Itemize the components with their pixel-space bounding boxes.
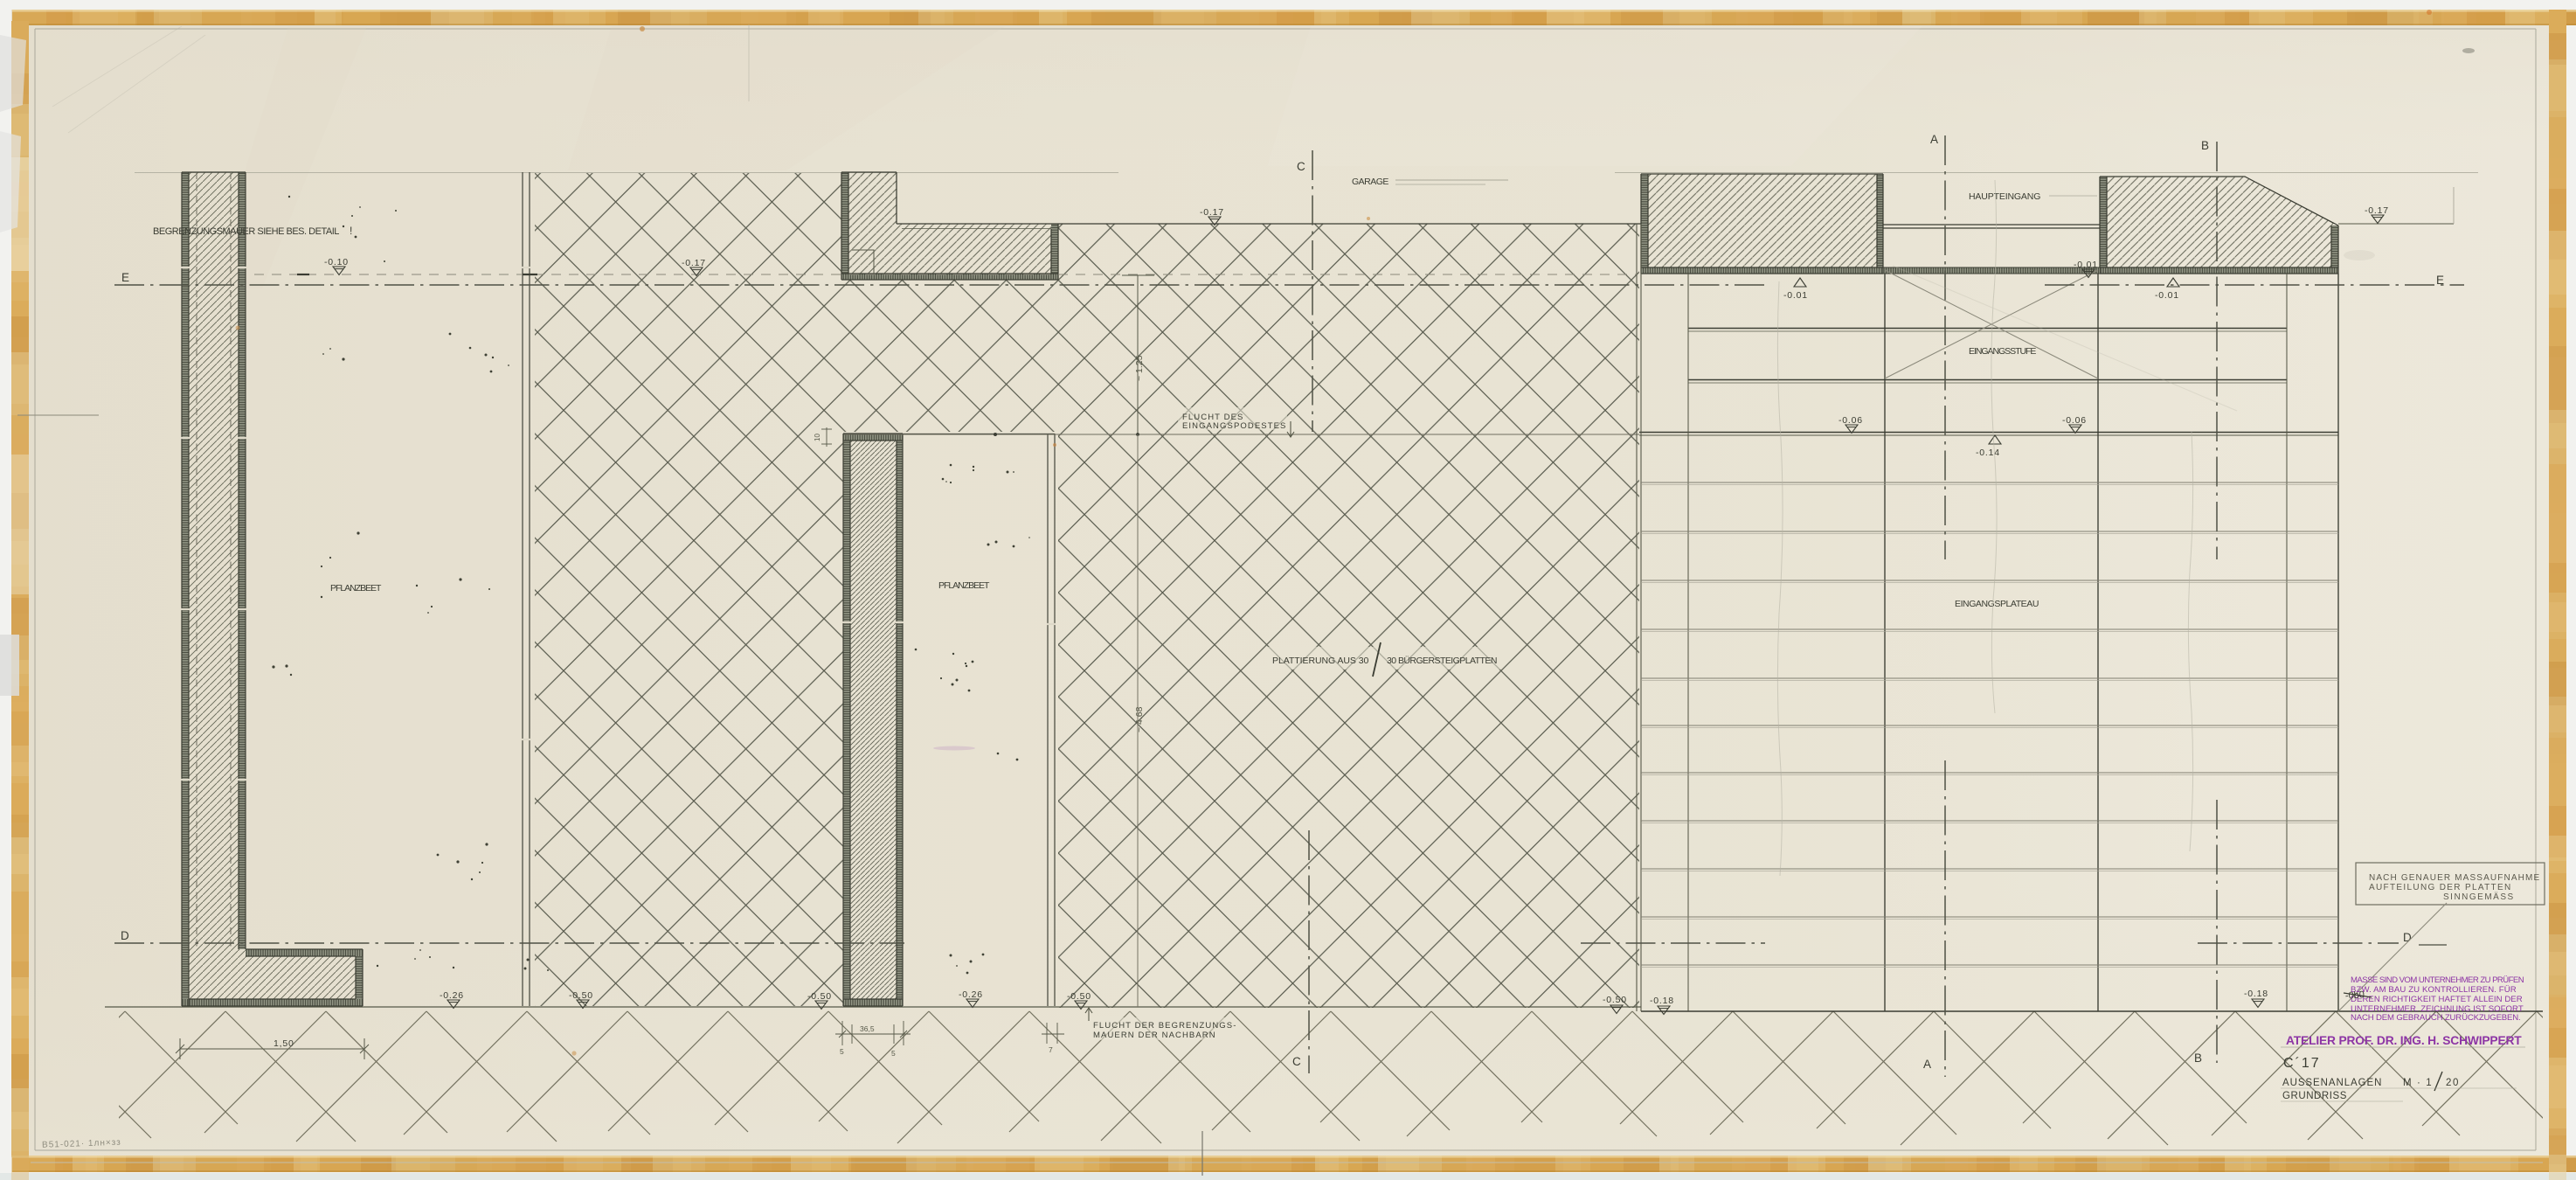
svg-text:PFLANZBEET: PFLANZBEET [938, 580, 991, 591]
svg-text:-0.17: -0.17 [682, 258, 706, 268]
svg-text:-0.17: -0.17 [1200, 207, 1224, 218]
svg-text:PLATTIERUNG AUS 30: PLATTIERUNG AUS 30 [1272, 656, 1370, 666]
svg-text:PFLANZBEET: PFLANZBEET [330, 583, 383, 593]
svg-text:SINNGEMÄSS: SINNGEMÄSS [2443, 892, 2514, 902]
svg-text:B: B [2201, 139, 2209, 152]
svg-text:DEREN RICHTIGKEIT HAFTET ALLEI: DEREN RICHTIGKEIT HAFTET ALLEIN DER [2351, 995, 2523, 1004]
svg-text:BZW. AM BAU ZU KONTROLLIEREN.: BZW. AM BAU ZU KONTROLLIEREN. FÜR [2351, 985, 2517, 995]
svg-text:AUSSENANLAGEN: AUSSENANLAGEN [2282, 1078, 2383, 1088]
svg-text:7: 7 [1049, 1045, 1053, 1054]
svg-text:-0.50: -0.50 [807, 991, 832, 1002]
svg-text:-0.50: -0.50 [569, 990, 593, 1001]
svg-text:GRUNDRISS: GRUNDRISS [2282, 1091, 2348, 1101]
svg-text:-0.26: -0.26 [959, 989, 983, 1000]
svg-text:NACH DEM GEBRAUCH ZURÜCKZUGEBE: NACH DEM GEBRAUCH ZURÜCKZUGEBEN. [2351, 1013, 2521, 1023]
svg-text:EINGANGSPODESTES: EINGANGSPODESTES [1182, 421, 1286, 431]
svg-text:-0.50: -0.50 [1603, 995, 1627, 1005]
svg-text:A: A [1923, 1058, 1931, 1071]
svg-text:5: 5 [840, 1047, 844, 1056]
svg-text:B: B [2194, 1052, 2202, 1065]
svg-text:E: E [2436, 274, 2444, 287]
svg-text:36,5: 36,5 [860, 1024, 875, 1033]
svg-text:20: 20 [2446, 1078, 2460, 1088]
svg-text:~ 1.25: ~ 1.25 [1134, 355, 1145, 381]
svg-text:C: C [1292, 1055, 1301, 1068]
svg-text:-0.01: -0.01 [2155, 290, 2179, 301]
svg-text:C´17: C´17 [2283, 1056, 2321, 1071]
svg-text:AUFTEILUNG DER PLATTEN: AUFTEILUNG DER PLATTEN [2369, 883, 2511, 892]
svg-text:-0.14: -0.14 [1976, 448, 2000, 458]
svg-text:MASSE SIND VOM UNTERNEHMER ZU: MASSE SIND VOM UNTERNEHMER ZU PRÜFEN [2351, 975, 2524, 985]
svg-text:1,50: 1,50 [274, 1038, 294, 1049]
svg-text:E: E [121, 271, 129, 284]
svg-text:EINGANGSPLATEAU: EINGANGSPLATEAU [1955, 599, 2040, 609]
svg-text:-0.18: -0.18 [2244, 989, 2268, 999]
svg-text:-0.06: -0.06 [1839, 415, 1863, 426]
svg-text:-0.01: -0.01 [2074, 260, 2098, 270]
svg-text:-0.17: -0.17 [2365, 205, 2389, 216]
svg-text:FLUCHT DER BEGRENZUNGS-: FLUCHT DER BEGRENZUNGS- [1093, 1021, 1236, 1031]
svg-text:!: ! [350, 225, 352, 237]
svg-text:~ 4.68: ~ 4.68 [1134, 706, 1145, 732]
svg-text:A: A [1930, 133, 1938, 146]
svg-text:5: 5 [891, 1049, 896, 1058]
svg-text:ATELIER PROF. DR. ING. H. SCHW: ATELIER PROF. DR. ING. H. SCHWIPPERT [2286, 1034, 2522, 1047]
svg-text:GARAGE: GARAGE [1352, 177, 1390, 187]
svg-text:10: 10 [814, 434, 821, 441]
svg-text:NACH GENAUER MASSAUFNAHME: NACH GENAUER MASSAUFNAHME [2369, 873, 2540, 883]
svg-text:D: D [121, 929, 129, 942]
svg-text:EINGANGSSTUFE: EINGANGSSTUFE [1969, 346, 2038, 357]
svg-text:M · 1: M · 1 [2403, 1078, 2433, 1088]
svg-text:-0.18: -0.18 [1650, 996, 1674, 1006]
svg-text:30 BÜRGERSTEIGPLATTEN: 30 BÜRGERSTEIGPLATTEN [1387, 656, 1499, 666]
svg-text:-0.10: -0.10 [324, 257, 349, 267]
svg-text:BEGRENZUNGSMAUER SIEHE BES. DE: BEGRENZUNGSMAUER SIEHE BES. DETAIL [153, 226, 341, 237]
svg-text:-0.01: -0.01 [1783, 290, 1808, 301]
svg-text:C: C [1297, 160, 1305, 173]
svg-text:-0.50: -0.50 [1067, 991, 1091, 1002]
svg-text:-0.26: -0.26 [440, 990, 464, 1001]
svg-text:MAUERN DER NACHBARN: MAUERN DER NACHBARN [1093, 1031, 1216, 1040]
svg-text:-0.06: -0.06 [2062, 415, 2087, 426]
svg-text:HAUPTEINGANG: HAUPTEINGANG [1969, 191, 2042, 202]
